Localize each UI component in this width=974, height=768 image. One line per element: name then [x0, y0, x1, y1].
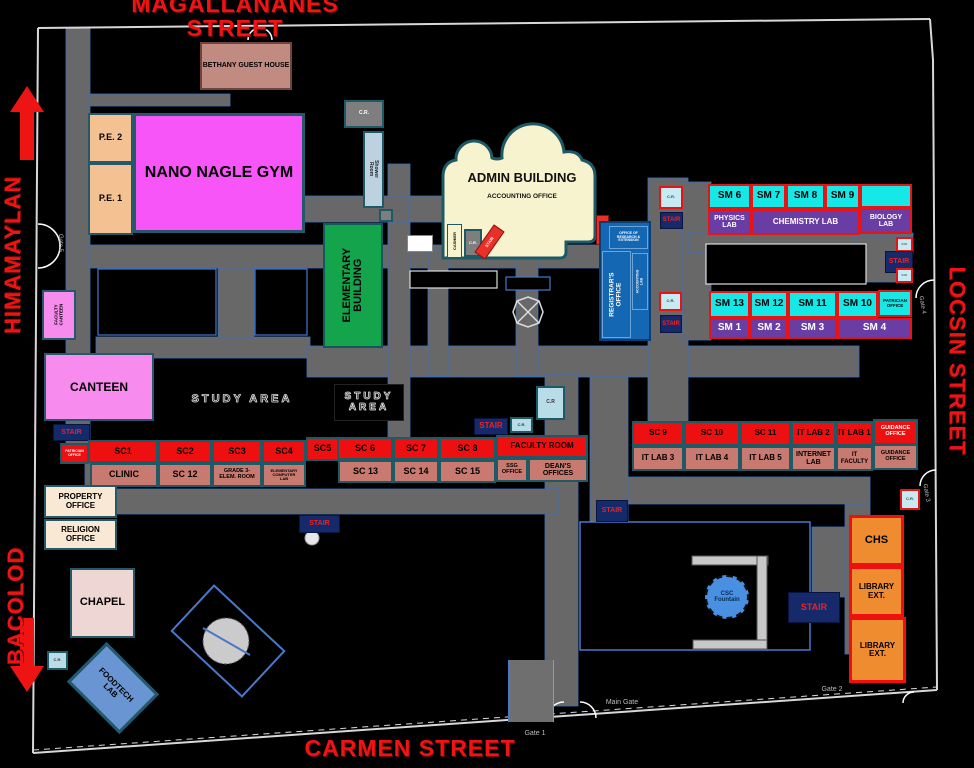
biology-lab-label: BIOLOGY LAB	[870, 214, 902, 228]
sc-8: SC 8	[439, 437, 496, 460]
admin-accounting-office: ACCOUNTING OFFICE	[448, 192, 596, 202]
sc-15-label: SC 15	[455, 467, 480, 476]
stair-faculty: STAIR	[474, 418, 508, 435]
pe-1-label: P.E. 1	[99, 194, 122, 203]
it-lab-1-label: IT LAB 1	[838, 429, 870, 437]
campus-map: BETHANY GUEST HOUSEP.E. 2P.E. 1NANO NAGL…	[0, 0, 974, 768]
it-lab-2-label: IT LAB 2	[797, 429, 829, 437]
physics-lab: PHYSICS LAB	[708, 209, 751, 235]
sc-14: SC 14	[393, 460, 439, 483]
grade3-elem-room-label: GRADE 3- ELEM. ROOM	[219, 469, 254, 480]
sm-8: SM 8	[786, 184, 825, 209]
sm-room-unlabeled	[860, 184, 912, 208]
internet-lab: INTERNET LAB	[791, 446, 836, 471]
stair-csc: STAIR	[788, 592, 840, 623]
nano-nagle-gym: NANO NAGLE GYM	[133, 113, 305, 233]
sm-10-label: SM 10	[843, 299, 872, 309]
it-lab-3: IT LAB 3	[632, 446, 684, 471]
sm-9: SM 9	[825, 184, 860, 209]
ssg-office: SSG OFFICE	[496, 458, 528, 482]
sm-3: SM 3	[788, 318, 837, 339]
stair-sm-upper: STAIR	[660, 212, 683, 229]
sc-5: SC5	[306, 437, 339, 461]
deans-offices: DEAN'S OFFICES	[528, 458, 588, 482]
cr-admin-label: C.R.	[469, 241, 477, 245]
gate-1-label: Gate 1	[515, 729, 555, 739]
sc-12-label: SC 12	[172, 470, 197, 479]
stair-main-road: STAIR	[596, 500, 628, 522]
sc-6-label: SC 6	[355, 444, 375, 453]
sc-12: SC 12	[158, 463, 212, 487]
stair-canteen-label: STAIR	[61, 429, 81, 436]
guidance-office-upper: GUIDANCE OFFICE	[873, 419, 918, 445]
sm-8-label: SM 8	[794, 191, 817, 201]
sc-1-label: SC1	[114, 447, 132, 456]
sc-14-label: SC 14	[403, 467, 428, 476]
street-carmen-label: CARMEN STREET	[304, 736, 515, 760]
it-lab-5: IT LAB 5	[740, 446, 791, 471]
patrician-office-left-label: PATRICIAN OFFICE	[65, 450, 84, 457]
cashier: CASHIER	[447, 224, 462, 258]
sm-11-label: SM 11	[798, 299, 826, 309]
sc-5-label: SC5	[314, 444, 332, 453]
religion-office-label: RELIGION OFFICE	[61, 526, 100, 542]
ssg-office-label: SSG OFFICE	[502, 464, 522, 475]
sc-8-label: SC 8	[457, 444, 477, 453]
chapel-label: CHAPEL	[80, 597, 125, 608]
sc-15: SC 15	[439, 460, 496, 483]
guidance-office-lower: GUIDANCE OFFICE	[873, 444, 918, 470]
foodtech-lab-label: FOODTECH LAB	[91, 666, 134, 709]
gate-1-label-label: Gate 1	[524, 730, 545, 737]
bethany-guest-house-label: BETHANY GUEST HOUSE	[203, 62, 290, 69]
gate-3-label-label: Gate 3	[921, 484, 930, 503]
gate-5-label-label: Gate 5	[57, 234, 63, 252]
stair-sm-upper-label: STAIR	[663, 217, 681, 223]
faculty-room-label: FACULTY ROOM	[510, 442, 573, 450]
chs-label: CHS	[865, 535, 888, 546]
csc-fountain: CSC Fountain	[705, 575, 749, 619]
clinic: CLINIC	[90, 463, 158, 487]
street-locsin-label: LOCSIN STREET	[945, 266, 968, 455]
study-area-2-label: STUDY AREA	[345, 392, 394, 413]
gate-2-label: Gate 2	[812, 685, 852, 695]
sc-10-label: SC 10	[701, 429, 723, 437]
cr-sm-upper: C.R.	[659, 186, 683, 209]
cr-faculty-big-label: C.R	[546, 400, 555, 405]
stair-sm-lower-label: STAIR	[662, 321, 680, 327]
sm-4: SM 4	[837, 318, 912, 339]
cr-sm-lower: C.R.	[659, 292, 682, 311]
it-faculty-label: IT FACULTY	[841, 452, 868, 464]
patrician-office-sm-label: PATRICIAN OFFICE	[883, 299, 907, 308]
study-area-1-label: STUDY AREA	[192, 394, 293, 406]
street-magallananes: MAGALLANANES STREET	[90, 2, 380, 30]
property-office: PROPERTY OFFICE	[44, 485, 117, 518]
gate-4-label-label: Gate 4	[917, 296, 926, 315]
csc-fountain-label: CSC Fountain	[714, 591, 739, 603]
property-office-label: PROPERTY OFFICE	[58, 493, 102, 509]
guidance-office-lower-label: GUIDANCE OFFICE	[881, 451, 910, 462]
it-lab-3-label: IT LAB 3	[642, 454, 674, 462]
elementary-computer-lab: ELEMENTARY COMPUTER LAB	[262, 463, 306, 487]
it-lab-4: IT LAB 4	[684, 446, 740, 471]
stair-admin-label: STAIR	[484, 236, 494, 248]
elementary-building-label: ELEMENTARY BUILDING	[342, 248, 364, 323]
court	[172, 586, 284, 697]
bethany-guest-house: BETHANY GUEST HOUSE	[200, 42, 292, 90]
it-lab-1: IT LAB 1	[836, 421, 873, 446]
admin-accounting-office-label: ACCOUNTING OFFICE	[487, 194, 557, 201]
sm-6-label: SM 6	[718, 191, 741, 201]
sm-2-label: SM 2	[757, 323, 780, 333]
faculty-canteen-label: FACULTY CANTEEN	[54, 300, 63, 330]
street-magallananes-label: MAGALLANANES STREET	[90, 0, 380, 40]
sm-3-label: SM 3	[801, 323, 824, 333]
gate-5-label: Gate 5	[55, 223, 65, 263]
it-lab-5-label: IT LAB 5	[749, 454, 781, 462]
sc-10: SC 10	[684, 421, 740, 446]
cr-faculty-small: C.R.	[510, 417, 533, 433]
grade3-elem-room: GRADE 3- ELEM. ROOM	[212, 463, 262, 487]
sm-1: SM 1	[709, 318, 750, 339]
internet-lab-label: INTERNET LAB	[796, 451, 831, 465]
shower-room: Shower Room	[363, 131, 384, 208]
sc-13-label: SC 13	[353, 467, 378, 476]
cr-right-bottom: C.R.	[896, 268, 913, 283]
chs: CHS	[849, 515, 904, 566]
sm-1-label: SM 1	[718, 323, 741, 333]
sc-2: SC2	[158, 440, 212, 463]
stair-main-road-label: STAIR	[602, 507, 622, 514]
round-planter	[305, 531, 319, 545]
street-bacolod-label: BACOLOD	[4, 547, 27, 665]
sc-1: SC1	[88, 440, 158, 463]
it-faculty: IT FACULTY	[836, 446, 873, 471]
elementary-building: ELEMENTARY BUILDING	[323, 223, 383, 348]
utility-box	[379, 209, 393, 222]
sm-12-label: SM 12	[755, 299, 784, 309]
main-gate-label: Main Gate	[596, 698, 648, 708]
cr-right-bottom-label: C.R.	[902, 274, 908, 277]
sc-7-label: SC 7	[406, 444, 426, 453]
gatehouse	[508, 660, 554, 722]
cr-faculty-big: C.R	[536, 386, 565, 420]
cr-faculty-small-label: C.R.	[518, 423, 526, 427]
clinic-label: CLINIC	[109, 470, 139, 479]
sm-7: SM 7	[751, 184, 786, 209]
street-locsin: LOCSIN STREET	[942, 261, 972, 461]
physics-lab-label: PHYSICS LAB	[714, 215, 745, 229]
sm-9-label: SM 9	[831, 191, 854, 201]
sc-9: SC 9	[632, 421, 684, 446]
sc-4: SC4	[262, 440, 306, 463]
faculty-room: FACULTY ROOM	[496, 435, 588, 458]
cr-right-top: C.R.	[896, 237, 913, 252]
shower-room-label: Shower Room	[368, 160, 378, 178]
street-bacolod: BACOLOD	[3, 551, 29, 661]
sc-13: SC 13	[338, 460, 393, 483]
cr-gym-label: C.R.	[359, 111, 369, 116]
sm-11: SM 11	[788, 291, 837, 318]
sm-7-label: SM 7	[757, 191, 780, 201]
biology-lab: BIOLOGY LAB	[860, 208, 912, 234]
sm-13: SM 13	[709, 291, 750, 318]
gate-2-label-label: Gate 2	[821, 686, 842, 693]
sc-11: SC 11	[740, 421, 791, 446]
library-ext-2: LIBRARY EXT.	[849, 617, 906, 683]
cashier-label: CASHIER	[452, 232, 456, 250]
sc-3-label: SC3	[228, 447, 246, 456]
sc-6: SC 6	[337, 437, 393, 460]
cr-right-top-label: C.R.	[902, 243, 908, 246]
sc-11-label: SC 11	[755, 429, 777, 437]
elementary-computer-lab-label: ELEMENTARY COMPUTER LAB	[270, 469, 297, 481]
library-ext-1: LIBRARY EXT.	[849, 566, 904, 617]
sm-6: SM 6	[708, 184, 751, 209]
accounting-lab: ACCOUNTING LAB	[632, 253, 648, 310]
sc-9-label: SC 9	[649, 429, 667, 437]
library-ext-2-label: LIBRARY EXT.	[860, 642, 895, 658]
white-kiosk	[407, 235, 433, 252]
street-himamaylan-label: HIMAMAYLAN	[1, 176, 24, 334]
registrars-office-label: REGISTRAR'S OFFICE	[610, 272, 623, 316]
street-carmen: CARMEN STREET	[295, 733, 525, 763]
admin-building-title-label: ADMIN BUILDING	[467, 171, 576, 185]
cr-sm-lower-label: C.R.	[667, 299, 675, 303]
chemistry-lab-label: CHEMISTRY LAB	[773, 218, 838, 226]
pe-2-label: P.E. 2	[99, 133, 122, 142]
stair-sm-lower: STAIR	[660, 315, 682, 333]
pe-1: P.E. 1	[88, 163, 133, 235]
patrician-office-sm: PATRICIAN OFFICE	[878, 290, 912, 317]
patrician-office-left: PATRICIAN OFFICE	[60, 443, 89, 464]
office-research-extension: OFFICE OF RESEARCH & EXTENSION	[609, 226, 648, 249]
sc-3: SC3	[212, 440, 262, 463]
pe-2: P.E. 2	[88, 113, 133, 163]
admin-building-title: ADMIN BUILDING	[448, 170, 596, 186]
chemistry-lab: CHEMISTRY LAB	[751, 209, 860, 235]
stair-right-label: STAIR	[889, 258, 909, 265]
cr-sm-upper-label: C.R.	[667, 195, 675, 199]
cr-gate3: C.R.	[900, 489, 920, 510]
chapel: CHAPEL	[70, 568, 135, 638]
sc-2-label: SC2	[176, 447, 194, 456]
it-lab-4-label: IT LAB 4	[696, 454, 728, 462]
study-area-2: STUDY AREA	[334, 384, 404, 421]
sm-2: SM 2	[750, 318, 788, 339]
it-lab-2: IT LAB 2	[791, 421, 836, 446]
guidance-office-upper-label: GUIDANCE OFFICE	[881, 426, 910, 437]
main-gate-label-label: Main Gate	[606, 699, 638, 706]
cr-chapel-label: C.R.	[54, 658, 62, 662]
cr-chapel: C.R.	[47, 651, 68, 670]
cr-gate3-label: C.R.	[906, 497, 914, 501]
registrars-office: REGISTRAR'S OFFICE	[602, 251, 631, 338]
stair-sc-road: STAIR	[299, 515, 340, 533]
library-ext-1-label: LIBRARY EXT.	[859, 583, 894, 599]
sm-12: SM 12	[750, 291, 788, 318]
nano-nagle-gym-label: NANO NAGLE GYM	[145, 165, 293, 181]
stair-canteen: STAIR	[53, 424, 90, 441]
stair-faculty-label: STAIR	[479, 422, 502, 430]
deans-offices-label: DEAN'S OFFICES	[543, 463, 573, 477]
sm-4-label: SM 4	[863, 323, 886, 333]
sm-13-label: SM 13	[715, 299, 744, 309]
cr-gym: C.R.	[344, 100, 384, 128]
sc-4-label: SC4	[275, 447, 293, 456]
stair-csc-label: STAIR	[801, 603, 827, 612]
office-research-extension-label: OFFICE OF RESEARCH & EXTENSION	[617, 232, 640, 243]
canteen: CANTEEN	[44, 353, 154, 421]
faculty-canteen: FACULTY CANTEEN	[42, 290, 76, 340]
stair-sc-road-label: STAIR	[309, 520, 329, 527]
arrow-up-himamaylan	[10, 86, 44, 160]
accounting-lab-label: ACCOUNTING LAB	[636, 270, 643, 294]
religion-office: RELIGION OFFICE	[44, 519, 117, 550]
study-area-1: STUDY AREA	[186, 390, 298, 410]
sc-7: SC 7	[393, 437, 439, 460]
canteen-label: CANTEEN	[70, 381, 128, 393]
sm-10: SM 10	[837, 291, 878, 318]
street-himamaylan: HIMAMAYLAN	[0, 172, 26, 338]
